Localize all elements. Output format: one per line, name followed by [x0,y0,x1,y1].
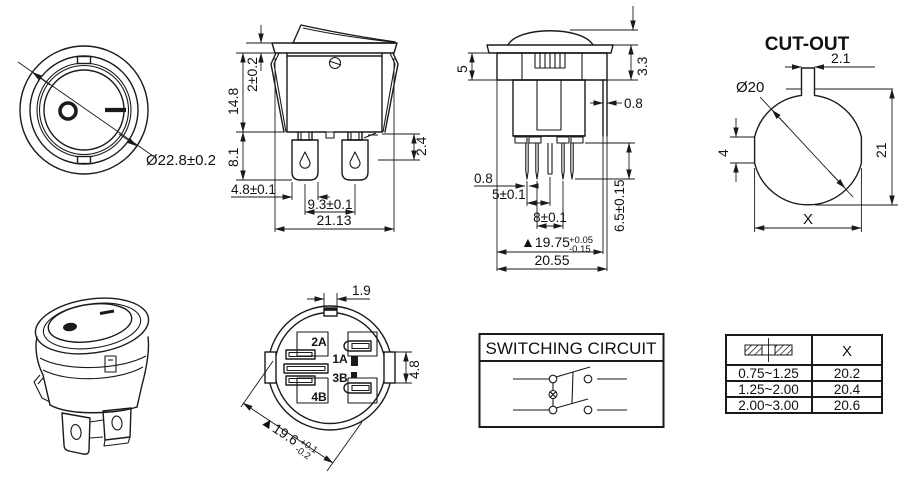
dim-notch-width: 2.1 [831,50,851,66]
table-cell-thickness: 2.00~3.00 [738,398,798,413]
contact [584,375,592,383]
dim-height: 21 [873,142,889,158]
perspective-view [10,280,210,482]
dim-width: X [803,211,813,228]
terminal-hook-detail [364,133,378,138]
terminal-label-3B: 3B [332,371,348,385]
dim-body-tol-down: -0.15 [569,244,591,255]
rocker-face [46,299,134,347]
bottom-view: 2A 1A 3B 4B 1.9 4.8 ▲19.6 +0.1 -0.2 [240,280,460,482]
dim-upper-height: 5 [454,65,470,73]
snap-wing-right [385,53,398,132]
cutout-outline [755,68,862,205]
dim-height-upper: 14.8 [228,88,241,115]
terminal-label-2A: 2A [311,335,327,349]
blade-link [572,372,573,403]
contact [549,406,557,414]
perspective-outline [32,291,152,454]
dim-flange-thickness: 2±0.2 [244,57,260,92]
terminal-bar-center [284,364,328,373]
terminal-right-hole [111,415,123,430]
dim-tab-height: 4.8 [407,360,422,379]
rocker-markings [60,103,126,119]
dim-step: 2.4 [413,136,428,156]
front-outline [271,25,398,180]
terminal-right [342,140,368,180]
table-cell-x: 20.6 [834,398,860,413]
dim-terminal-pitch: 9.3±0.1 [308,197,353,212]
terminal-left-hole [300,152,310,168]
pin-3 [548,143,552,174]
dim-pin-length: 6.5±0.15 [612,180,627,232]
terminal-right-hole [350,152,360,168]
contact [584,406,592,414]
terminal-left [292,140,318,180]
table-cell-thickness: 1.25~2.00 [738,382,798,397]
contact [549,375,557,383]
dim-pin-pitch-large: 8±0.1 [533,210,567,225]
rocker-dome [508,31,593,45]
dim-terminal-width: 4.8±0.1 [231,182,276,197]
engineering-drawing-sheet: Ø22.8±0.2 2±0.2 14.8 8.1 [0,0,916,482]
circuit-schematic [513,367,627,414]
dim-pin-width: 0.8 [474,171,493,186]
side-tab-left [265,352,276,383]
switching-circuit: SWITCHING CIRCUIT [478,330,678,435]
snap-wing [34,375,50,402]
dim-overall-width: 20.55 [534,252,569,268]
bezel-key-tab-bottom [78,157,91,164]
side-outline [487,31,613,179]
terminal-bar [286,376,315,385]
dim-flange-height: 3.3 [634,56,650,76]
dim-top-diameter: Ø22.8±0.2 [146,152,216,169]
upper-body [497,53,607,80]
snap-wing-left [271,53,284,132]
dim-flat-height: 4 [715,149,731,157]
panel-thickness-table: X 0.75~1.25 20.2 1.25~2.00 20.4 2.00~3.0… [725,333,887,417]
panel-thickness-symbol [745,338,792,362]
table-cell-thickness: 0.75~1.25 [738,366,798,381]
vent-ribs [540,53,560,68]
dim-diameter: Ø20 [736,79,764,96]
dim-body-width: ▲19.6 [258,412,301,448]
latch-clip [105,356,116,372]
dim-notch-width: 1.9 [352,283,371,298]
terminal-left-hole [70,424,82,440]
pin-4 [562,143,564,179]
dim-overall-width: 21.13 [316,212,351,228]
dim-height-lower: 8.1 [228,147,241,167]
switch-bezel [20,46,148,174]
terminal-bar [286,350,315,359]
side-dimensions: 5 3.3 0.8 0.8 5±0.1 8±0.1 6.5±0.15 ▲19.7… [454,6,650,271]
off-symbol [60,103,76,119]
on-symbol [100,311,114,314]
front-view: 2±0.2 14.8 8.1 4.8±0.1 9.3±0.1 21.13 2.4 [228,8,428,240]
off-symbol [62,322,77,332]
terminal-left [62,413,90,454]
cutout-hole [755,68,862,205]
flange [487,45,613,53]
terminal-label-4B: 4B [311,390,327,404]
side-view: 5 3.3 0.8 0.8 5±0.1 8±0.1 6.5±0.15 ▲19.7… [430,0,668,272]
bezel [32,291,152,360]
table-cell-x: 20.4 [834,382,861,397]
pin-1 [526,143,528,179]
cutout-view: CUT-OUT 2.1 Ø20 4 21 X [690,10,916,260]
lower-body [513,80,585,136]
circuit-title: SWITCHING CIRCUIT [486,339,657,358]
top-view: Ø22.8±0.2 [5,15,230,200]
table-header-x: X [842,343,852,360]
pin-5 [571,143,573,179]
terminal-label-1A: 1A [332,352,348,366]
side-wall [603,80,607,136]
bottom-outline: 2A 1A 3B 4B [265,306,395,430]
dim-body-width: ▲19.75 [521,234,570,250]
side-tab-right [384,352,395,383]
dim-wall: 0.8 [624,96,643,111]
bezel-key-tab-top [78,57,91,64]
pin-2 [536,143,538,179]
table-cell-x: 20.2 [834,366,860,381]
flange [272,43,397,53]
